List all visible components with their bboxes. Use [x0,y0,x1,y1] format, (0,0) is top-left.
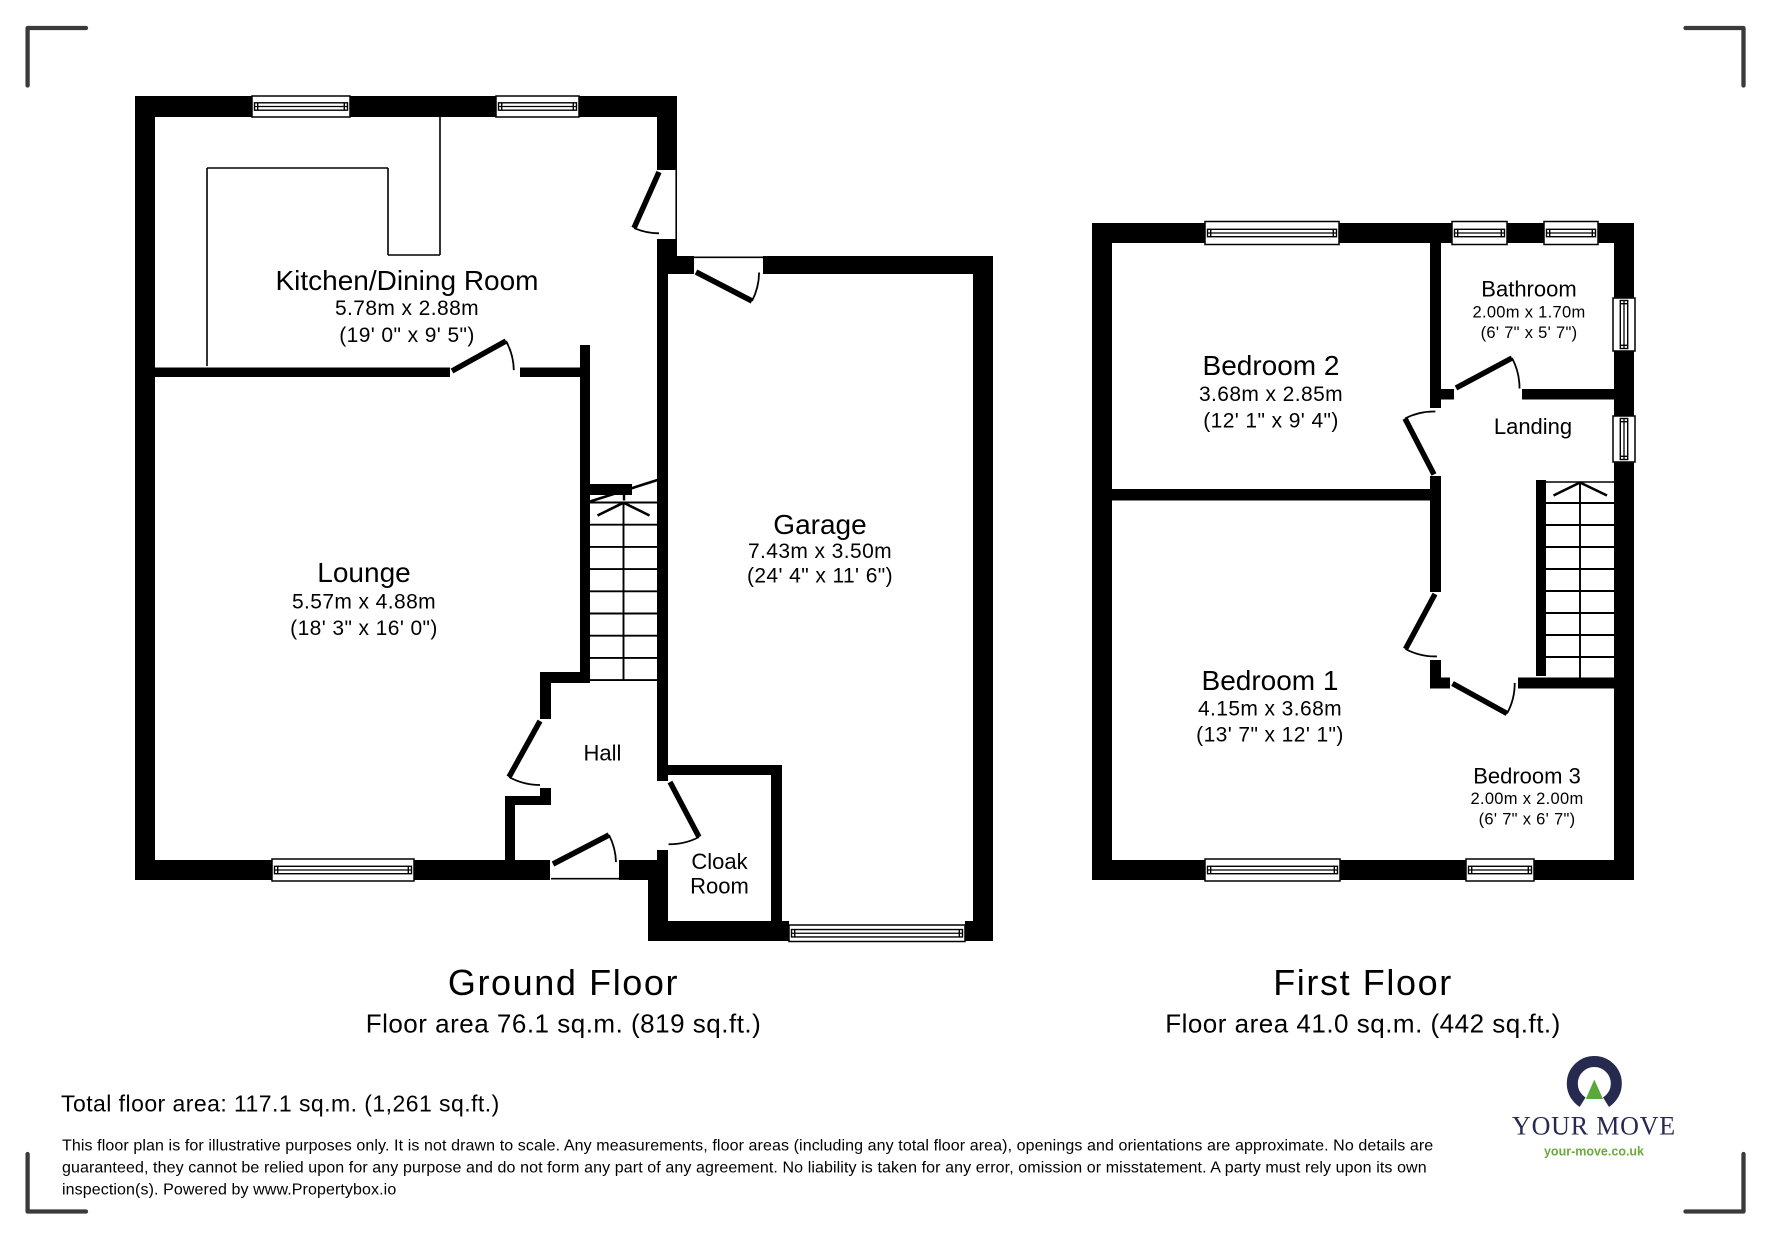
svg-text:YOUR MOVE: YOUR MOVE [1512,1112,1676,1141]
svg-text:5.57m x 4.88m: 5.57m x 4.88m [292,591,436,614]
svg-text:Ground Floor: Ground Floor [448,962,679,1003]
svg-text:7.43m x 3.50m: 7.43m x 3.50m [748,540,892,563]
svg-text:your-move.co.uk: your-move.co.uk [1544,1145,1644,1159]
svg-text:2.00m x 2.00m: 2.00m x 2.00m [1470,790,1583,808]
svg-text:5.78m x 2.88m: 5.78m x 2.88m [335,297,479,320]
svg-text:(12' 1" x 9' 4"): (12' 1" x 9' 4") [1203,410,1339,433]
svg-text:Room: Room [690,874,749,899]
svg-text:3.68m x 2.85m: 3.68m x 2.85m [1199,383,1343,406]
svg-text:(6' 7" x 5' 7"): (6' 7" x 5' 7") [1481,324,1578,342]
svg-text:(24' 4" x 11' 6"): (24' 4" x 11' 6") [747,565,893,588]
svg-text:Floor area 76.1 sq.m. (819 sq.: Floor area 76.1 sq.m. (819 sq.ft.) [366,1009,762,1039]
svg-text:Cloak: Cloak [691,849,748,874]
svg-text:Bedroom 1: Bedroom 1 [1202,665,1339,696]
svg-text:Floor area 41.0 sq.m. (442 sq.: Floor area 41.0 sq.m. (442 sq.ft.) [1165,1009,1561,1039]
svg-text:Bathroom: Bathroom [1481,277,1576,302]
svg-text:(6' 7" x 6' 7"): (6' 7" x 6' 7") [1479,811,1576,829]
svg-text:Bedroom 3: Bedroom 3 [1473,764,1581,789]
svg-text:Landing: Landing [1494,414,1572,439]
svg-text:guaranteed, they cannot be rel: guaranteed, they cannot be relied upon f… [62,1160,1427,1177]
svg-text:Total floor area: 117.1 sq.m.: Total floor area: 117.1 sq.m. (1,261 sq.… [61,1091,500,1117]
svg-text:inspection(s). Powered by www.: inspection(s). Powered by www.Propertybo… [62,1182,396,1199]
svg-text:Bedroom 2: Bedroom 2 [1203,350,1340,381]
svg-text:2.00m x 1.70m: 2.00m x 1.70m [1472,304,1585,322]
svg-text:Hall: Hall [584,741,622,766]
svg-text:4.15m x 3.68m: 4.15m x 3.68m [1198,698,1342,721]
svg-text:First Floor: First Floor [1273,962,1453,1003]
svg-text:(18' 3" x 16' 0"): (18' 3" x 16' 0") [290,617,438,640]
svg-text:Garage: Garage [773,509,866,540]
svg-text:(19' 0" x 9' 5"): (19' 0" x 9' 5") [339,324,475,347]
svg-text:(13' 7" x 12' 1"): (13' 7" x 12' 1") [1196,724,1344,747]
svg-text:Lounge: Lounge [317,557,410,588]
svg-text:This floor plan is for illustr: This floor plan is for illustrative purp… [62,1138,1433,1155]
svg-text:Kitchen/Dining Room: Kitchen/Dining Room [275,265,538,296]
